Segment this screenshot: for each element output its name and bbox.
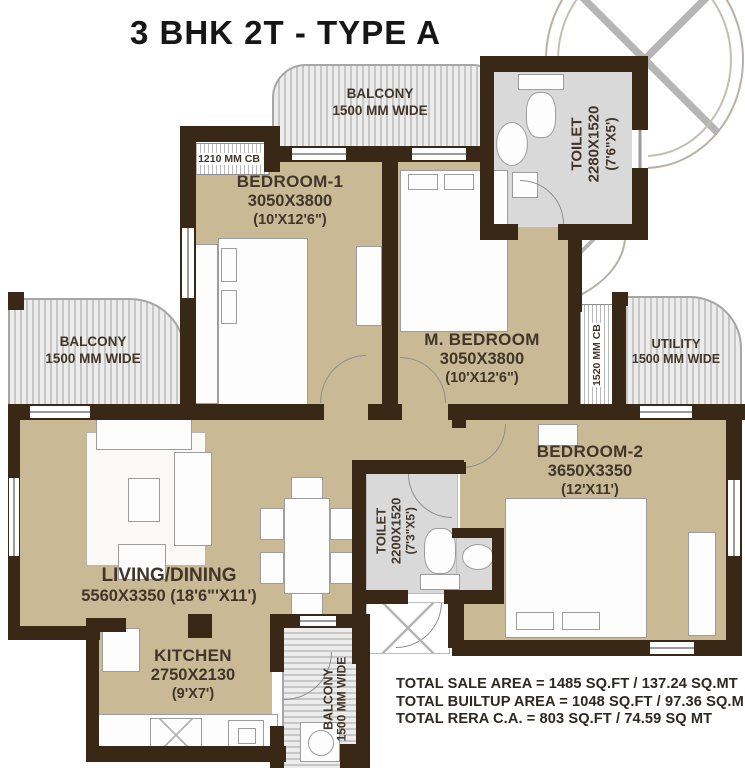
balcony-bottom-label: BALCONY 1500 MM WIDE	[310, 636, 360, 762]
wall-segment	[452, 528, 504, 538]
living-dining-label: LIVING/DINING 5560X3350 (18'6"'X11')	[24, 565, 314, 607]
balcony-top-width: 1500 MM WIDE	[282, 103, 478, 120]
m-bedroom-label: M. BEDROOM 3050X3800 (10'X12'6")	[392, 330, 572, 387]
toilet-mid-name: TOILET	[374, 498, 389, 565]
wall-segment	[368, 404, 402, 420]
balcony-bottom-width: 1500 MM WIDE	[335, 657, 349, 742]
wall-segment	[8, 292, 24, 310]
balcony-left-name: BALCONY	[12, 334, 174, 351]
m-bedroom-dim-ft: (10'X12'6")	[392, 370, 572, 387]
cupboard-m-bedroom: 1520 MM CB	[580, 304, 614, 406]
wall-segment	[480, 56, 494, 238]
dining-chair-right-1	[330, 508, 354, 540]
bedroom1-dim-mm: 3050X3800	[196, 192, 384, 211]
bedroom1-shelf	[194, 244, 218, 404]
window	[30, 406, 90, 418]
bedroom1-name: BEDROOM-1	[196, 172, 384, 192]
entrance-foyer	[366, 602, 450, 654]
balcony-bottom-name: BALCONY	[321, 657, 335, 742]
wall-segment	[270, 726, 284, 768]
utility-width: 1500 MM WIDE	[616, 352, 736, 368]
cupboard-bedroom1: 1210 MM CB	[188, 143, 270, 175]
bedroom1-pillow-1	[221, 248, 237, 282]
bedroom2-name: BEDROOM-2	[480, 442, 700, 462]
area-totals: TOTAL SALE AREA = 1485 SQ.FT / 137.24 SQ…	[396, 676, 745, 729]
window	[728, 480, 740, 556]
wall-segment	[452, 640, 742, 656]
m-bedroom-name: M. BEDROOM	[392, 330, 572, 350]
balcony-left-width: 1500 MM WIDE	[12, 351, 174, 368]
toilet-top-label: TOILET 2280X1520 (7'6"X5')	[548, 62, 638, 226]
window	[292, 148, 346, 160]
wall-segment	[188, 614, 212, 638]
toilet-mid-dim-ft: (7'3"X5')	[404, 498, 418, 565]
m-bedroom-pillow-2	[444, 174, 474, 190]
dining-chair-left-1	[260, 508, 284, 540]
wall-segment	[86, 746, 286, 762]
cupboard-m-bedroom-label: 1520 MM CB	[591, 323, 603, 387]
wall-segment	[612, 292, 628, 306]
living-dining-dims: 5560X3350 (18'6"'X11')	[24, 587, 314, 606]
living-sofa-right	[174, 452, 212, 546]
bedroom2-pillow-1	[516, 612, 554, 630]
bedroom1-dim-ft: (10'X12'6")	[196, 212, 384, 229]
living-coffee-table	[128, 478, 160, 522]
balcony-top-label: BALCONY 1500 MM WIDE	[282, 86, 478, 120]
toilet-top-name: TOILET	[568, 106, 585, 183]
kitchen-sink-basin	[238, 728, 256, 744]
wall-segment	[184, 404, 324, 420]
bedroom1-wardrobe	[356, 246, 382, 326]
balcony-left-label: BALCONY 1500 MM WIDE	[12, 334, 174, 368]
total-sale-area: TOTAL SALE AREA = 1485 SQ.FT / 137.24 SQ…	[396, 676, 745, 694]
wall-segment	[480, 224, 518, 240]
toilet-mid-dim-mm: 2200X1520	[389, 498, 404, 565]
utility-name: UTILITY	[616, 336, 736, 352]
kitchen-label: KITCHEN 2750X2130 (9'X7')	[108, 646, 278, 703]
wall-segment	[492, 528, 504, 604]
wall-segment	[448, 604, 464, 648]
total-builtup-area: TOTAL BUILTUP AREA = 1048 SQ.FT / 97.36 …	[396, 694, 745, 712]
m-bedroom-dim-mm: 3050X3800	[392, 350, 572, 369]
bedroom2-label: BEDROOM-2 3650X3350 (12'X11')	[480, 442, 700, 499]
bedroom2-dim-ft: (12'X11')	[480, 482, 700, 499]
kitchen-dim-ft: (9'X7')	[108, 686, 278, 703]
window	[300, 616, 336, 626]
toilet-top-basin	[496, 122, 528, 166]
window	[650, 642, 694, 654]
wall-segment	[86, 626, 99, 760]
toilet-mid-basin	[462, 544, 494, 570]
dining-chair-right-2	[330, 552, 354, 584]
toilet-mid-label: TOILET 2200X1520 (7'3"X5')	[362, 468, 430, 594]
window	[182, 228, 194, 298]
total-rera-area: TOTAL RERA C.A. = 803 SQ.FT / 74.59 SQ M…	[396, 711, 745, 729]
bedroom2-wardrobe	[688, 532, 716, 636]
bedroom1-pillow-2	[221, 290, 237, 324]
window	[640, 406, 692, 418]
toilet-top-dim-ft: (7'6"X5')	[602, 106, 618, 183]
window	[412, 148, 466, 160]
dining-chair-top	[291, 477, 323, 499]
wall-segment	[86, 618, 126, 632]
m-bedroom-pillow-1	[408, 174, 438, 190]
cupboard-bedroom1-label: 1210 MM CB	[197, 153, 261, 165]
bedroom1-label: BEDROOM-1 3050X3800 (10'X12'6")	[196, 172, 384, 229]
kitchen-dim-mm: 2750X2130	[108, 666, 278, 685]
utility-label: UTILITY 1500 MM WIDE	[616, 336, 736, 368]
wall-segment	[452, 404, 466, 428]
toilet-top-dim-mm: 2280X1520	[585, 106, 602, 183]
living-dining-name: LIVING/DINING	[24, 565, 314, 587]
bedroom2-dim-mm: 3650X3350	[480, 462, 700, 481]
wall-segment	[448, 404, 570, 420]
floor-plan: 1210 MM CB 1520 MM CB	[0, 0, 745, 768]
balcony-top-name: BALCONY	[282, 86, 478, 103]
plan-title: 3 BHK 2T - TYPE A	[130, 14, 490, 52]
bedroom2-pillow-2	[562, 612, 600, 630]
living-sofa-top	[96, 418, 192, 450]
kitchen-name: KITCHEN	[108, 646, 278, 666]
window	[9, 478, 19, 556]
